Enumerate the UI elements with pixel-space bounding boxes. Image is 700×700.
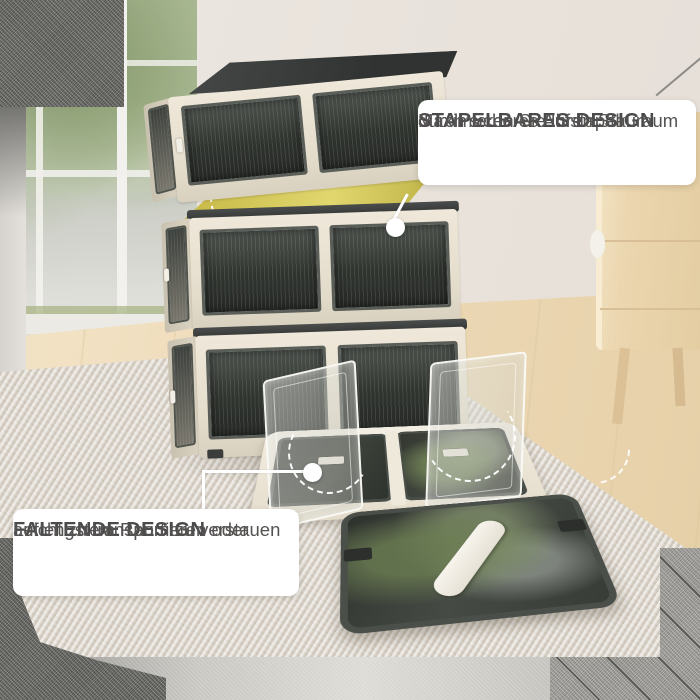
top-box-door-left [181,95,308,186]
middle-box-latch [164,268,169,282]
stackable-note-line2: durch sicheres Aufstapeln [418,109,630,133]
stackable-design-note: STAPELBARES DESIGN Maximieren Sie Ihren … [418,100,696,185]
bottom-box-latch [170,390,175,404]
corner-texture-top-left [0,0,124,107]
foldable-design-note: FALTENDE DESIGN Leicht zu transportieren… [13,509,299,596]
foldable-callout-dot-icon [303,463,322,482]
box-foot [207,449,223,459]
lid-hinge [557,519,587,532]
product-marketing-image: STAPELBARES DESIGN Maximieren Sie Ihren … [0,0,700,700]
top-box-latch [176,138,183,153]
lid-carry-handle [428,518,509,601]
middle-box-front [189,209,461,330]
foldable-callout-line [204,470,308,473]
stackable-callout-dot-icon [386,218,405,237]
middle-box-door-left [199,226,321,316]
lid-hinge [344,547,372,562]
corner-texture-fade [0,107,26,217]
foldable-note-line2: auf engstem Raum zu verstauen [13,518,280,542]
